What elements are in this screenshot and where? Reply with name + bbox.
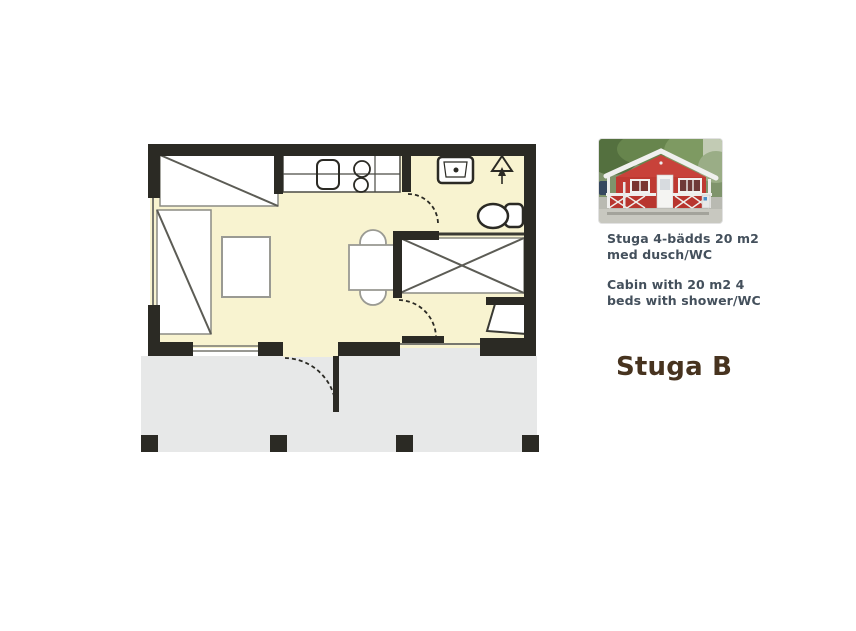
- cabin-description: Stuga 4-bädds 20 m2 med dusch/WC Cabin w…: [607, 231, 777, 323]
- toilet-icon: [478, 204, 523, 228]
- bunk-bed-right: [400, 238, 524, 293]
- description-line: Cabin with 20 m2 4: [607, 277, 777, 293]
- description-line: Stuga 4-bädds 20 m2: [607, 231, 777, 247]
- description-swedish: Stuga 4-bädds 20 m2 med dusch/WC: [607, 231, 777, 262]
- entrance-door-leaf: [333, 356, 339, 412]
- interior-door-leaf: [402, 336, 444, 343]
- description-line: beds with shower/WC: [607, 293, 777, 309]
- page-title: Stuga B: [616, 352, 732, 382]
- page: Stuga 4-bädds 20 m2 med dusch/WC Cabin w…: [0, 0, 856, 631]
- description-english: Cabin with 20 m2 4 beds with shower/WC: [607, 277, 777, 308]
- car: [599, 181, 608, 195]
- bunk-bed-top-left: [160, 155, 278, 206]
- kitchen-counter: [283, 153, 400, 192]
- cabin-photo: [599, 139, 722, 223]
- single-bed-left: [157, 210, 211, 334]
- description-line: med dusch/WC: [607, 247, 777, 263]
- small-table: [222, 237, 270, 297]
- shower-bench: [487, 304, 527, 334]
- washbasin-icon: [438, 157, 473, 183]
- meter-box: [702, 195, 710, 208]
